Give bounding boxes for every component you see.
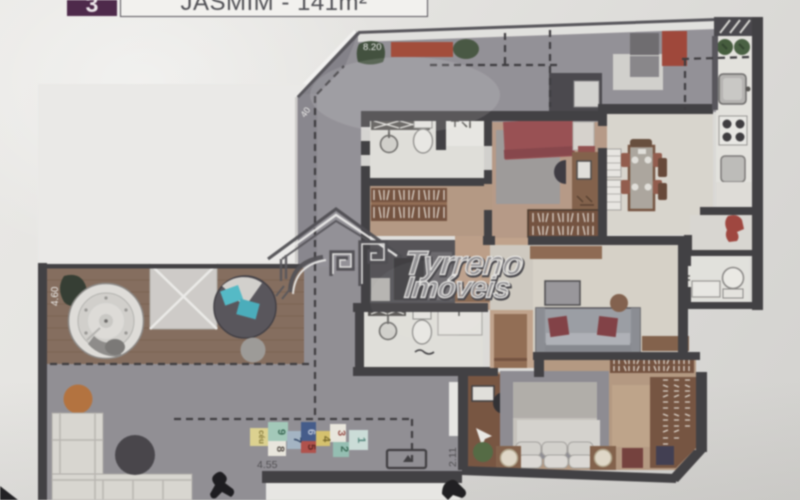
svg-text:3: 3 — [335, 430, 347, 436]
svg-text:8.20: 8.20 — [363, 42, 382, 53]
svg-text:1: 1 — [355, 437, 367, 443]
svg-text:8: 8 — [274, 446, 286, 452]
svg-text:Imóveis: Imóveis — [403, 272, 511, 305]
svg-text:4.60: 4.60 — [50, 286, 61, 306]
svg-text:4: 4 — [320, 436, 332, 443]
svg-text:7: 7 — [291, 437, 303, 443]
svg-text:2: 2 — [338, 446, 350, 452]
svg-text:céu: céu — [257, 430, 266, 444]
svg-text:9: 9 — [275, 429, 287, 435]
svg-text:4.55: 4.55 — [257, 459, 278, 471]
svg-text:6: 6 — [305, 429, 317, 435]
svg-text:5: 5 — [305, 444, 317, 450]
svg-text:2.11: 2.11 — [447, 447, 459, 467]
